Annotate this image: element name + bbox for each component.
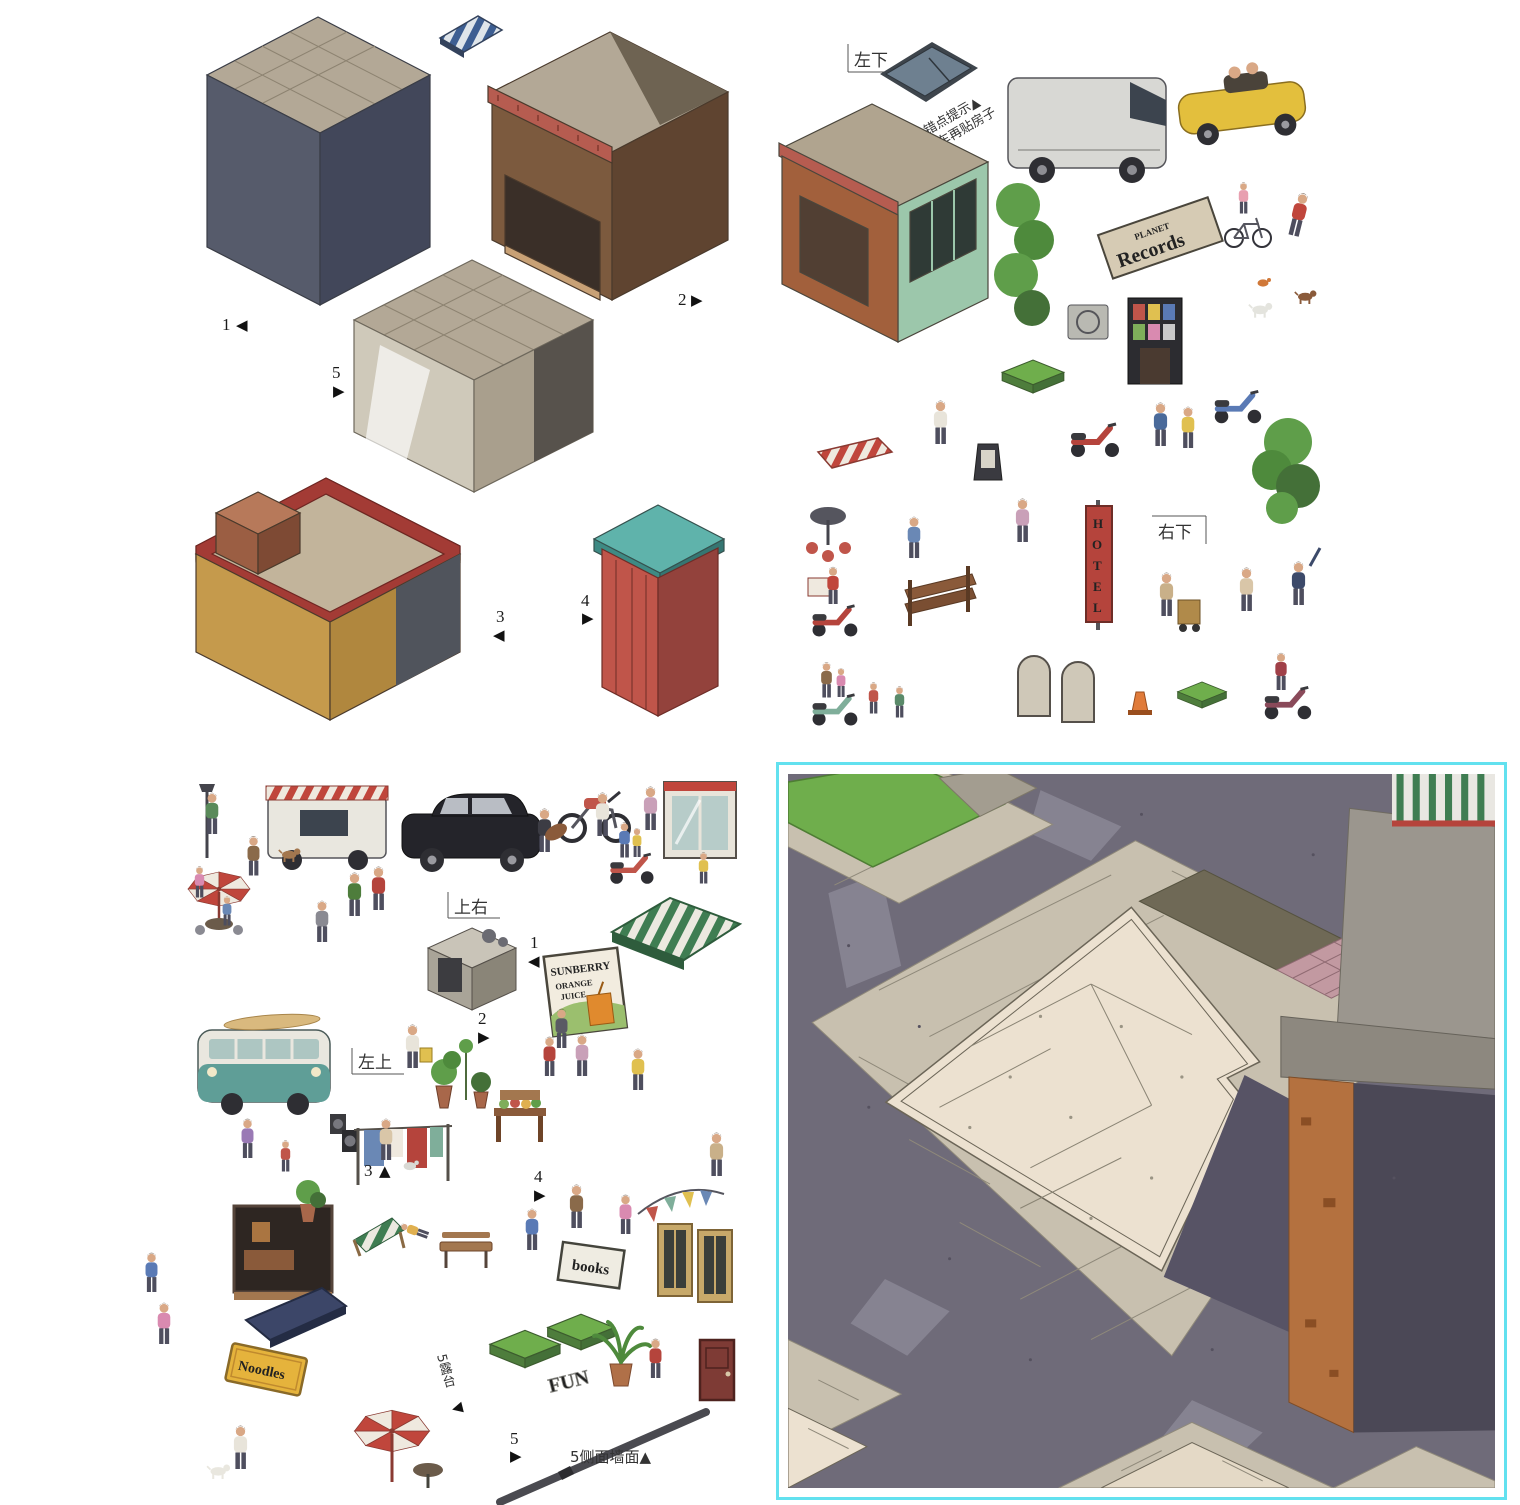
person — [710, 1133, 723, 1176]
street-scene — [788, 774, 1495, 1488]
red-moped — [1071, 424, 1119, 457]
person — [620, 1195, 632, 1234]
ac-unit — [1068, 305, 1108, 339]
hedge-column — [994, 183, 1054, 326]
panel-street-props: 左下 易错点提示▲ 先贴车再贴房子 PLA — [778, 28, 1520, 734]
svg-text:▶: ▶ — [691, 291, 703, 309]
corner-tag-top-right: 上右 — [448, 892, 500, 918]
fun-graffiti: FUN — [546, 1366, 592, 1397]
bird — [1258, 278, 1272, 287]
tree-bush — [1252, 418, 1320, 524]
svg-text:◀: ◀ — [450, 1399, 465, 1417]
hedge-block — [1178, 682, 1227, 708]
building-2 — [488, 32, 728, 300]
roadster-car — [1174, 56, 1308, 148]
person — [348, 873, 361, 916]
delivery-van — [1008, 78, 1166, 183]
building-1 — [207, 17, 430, 305]
person — [576, 1035, 589, 1076]
label-3: 3 — [496, 607, 505, 626]
label-1: 1 — [222, 315, 231, 334]
person — [372, 867, 385, 910]
person — [1154, 403, 1167, 446]
wood-barricade — [905, 566, 976, 626]
bench — [440, 1232, 492, 1268]
person — [934, 401, 947, 444]
cafe-table-set — [806, 507, 851, 562]
sedan-car — [402, 794, 540, 872]
kitchen-shelf — [494, 1090, 546, 1142]
person — [1182, 407, 1195, 448]
family-scooter — [813, 662, 858, 725]
side-wall-note: 5侧面墙面▲ — [570, 1448, 652, 1466]
hedge-planter — [1002, 360, 1064, 393]
label-4: 4 — [534, 1167, 543, 1186]
arched-window — [1018, 656, 1094, 722]
speakers — [330, 1114, 359, 1152]
svg-text:左下: 左下 — [854, 51, 888, 71]
panel-people-stickers: 上右 1 ◀ SUNBERRY ORANGE JUICE 2 ▶ 左上 — [140, 760, 770, 1505]
svg-text:◀: ◀ — [236, 316, 248, 334]
maroon-scooter-rider — [1265, 653, 1311, 719]
delivery-scooter — [808, 567, 857, 637]
svg-text:H: H — [1093, 516, 1103, 531]
baton — [1310, 548, 1320, 566]
label-2: 2 — [678, 290, 687, 309]
person — [380, 1119, 393, 1160]
label-2: 2 — [478, 1009, 487, 1028]
person — [1016, 499, 1029, 542]
svg-text:◀: ◀ — [528, 952, 540, 970]
motorcycle — [559, 792, 629, 841]
skylight-panel — [880, 42, 978, 102]
white-cat — [1249, 303, 1272, 318]
poster-wall — [1128, 298, 1182, 384]
svg-text:T: T — [1093, 558, 1102, 573]
svg-text:上右: 上右 — [454, 898, 488, 918]
person — [1240, 568, 1253, 611]
corner-tag-left-top: 左上 — [352, 1048, 404, 1074]
kid — [869, 683, 878, 714]
ticket-booth — [428, 928, 516, 1010]
person — [242, 1119, 254, 1158]
record-shop-sign: PLANET Records — [1098, 197, 1223, 278]
sandwich-board — [974, 444, 1002, 480]
vw-bus — [198, 1012, 330, 1115]
svg-text:▶: ▶ — [478, 1028, 490, 1046]
luggage-cart-person — [1160, 573, 1200, 632]
person — [316, 901, 329, 942]
svg-text:右下: 右下 — [1158, 523, 1192, 543]
jogger — [1287, 192, 1310, 237]
blue-scooter — [1215, 391, 1261, 423]
awning-piece-blue — [440, 16, 502, 58]
person — [158, 1303, 171, 1344]
market-awning — [612, 898, 740, 970]
noodles-sign: Noodles — [225, 1343, 307, 1396]
hotel-sign: H O T E L — [1086, 500, 1112, 630]
person — [146, 1253, 158, 1292]
svg-text:O: O — [1092, 537, 1102, 552]
small-dog — [1295, 290, 1317, 304]
panel-building-stickers: 1 ◀ 2 ▶ 5 ▶ 3 ◀ 4 ▶ — [100, 0, 760, 745]
label-1: 1 — [530, 933, 539, 952]
svg-text:左上: 左上 — [358, 1053, 392, 1073]
kid — [895, 687, 904, 718]
label-4: 4 — [581, 591, 590, 610]
svg-text:▶: ▶ — [333, 382, 345, 400]
storefront-window-piece — [664, 782, 736, 858]
person — [644, 787, 657, 830]
svg-text:E: E — [1093, 579, 1102, 594]
label-3: 3 — [364, 1161, 373, 1180]
striped-curb — [818, 438, 892, 468]
person — [908, 517, 921, 558]
deck-chair — [354, 1218, 404, 1256]
building-4-kiosk — [594, 505, 724, 716]
wall-orange-fragment — [1289, 1077, 1354, 1432]
plant-pots — [431, 1039, 491, 1108]
corner-tag-right-bottom: 右下 — [1152, 516, 1206, 544]
terrace-note: 5露台 ◀ — [433, 1352, 464, 1418]
svg-text:◀: ◀ — [493, 626, 505, 644]
noodle-shop-front — [234, 1206, 332, 1300]
scene-frame — [776, 762, 1507, 1500]
svg-text:L: L — [1093, 600, 1102, 615]
police-officer — [1292, 562, 1305, 605]
traffic-cone — [1128, 692, 1152, 715]
svg-text:5露台: 5露台 — [433, 1352, 456, 1389]
person — [526, 1209, 539, 1250]
person — [570, 1185, 583, 1228]
bunting-flags — [638, 1190, 724, 1222]
label-5: 5 — [510, 1429, 519, 1448]
walking-man-with-dog — [207, 1426, 247, 1479]
building-3 — [196, 478, 460, 720]
books-sign: books — [558, 1242, 625, 1288]
svg-text:▶: ▶ — [582, 609, 594, 627]
red-door — [700, 1340, 734, 1400]
label-5: 5 — [332, 363, 341, 382]
bicycle-rider — [1225, 183, 1271, 247]
svg-text:▶: ▶ — [534, 1186, 546, 1204]
person — [281, 1141, 290, 1172]
dark-wall — [1354, 1083, 1495, 1432]
building-5 — [354, 260, 593, 492]
svg-text:▶: ▶ — [510, 1447, 522, 1465]
shuttered-window — [658, 1224, 732, 1302]
couple-on-moped — [610, 822, 653, 883]
woman-with-bag — [406, 1025, 432, 1068]
svg-text:▲: ▲ — [379, 1162, 391, 1180]
person — [632, 1049, 645, 1090]
parasol-2 — [355, 1410, 444, 1488]
person — [544, 1037, 556, 1076]
person — [248, 836, 260, 875]
